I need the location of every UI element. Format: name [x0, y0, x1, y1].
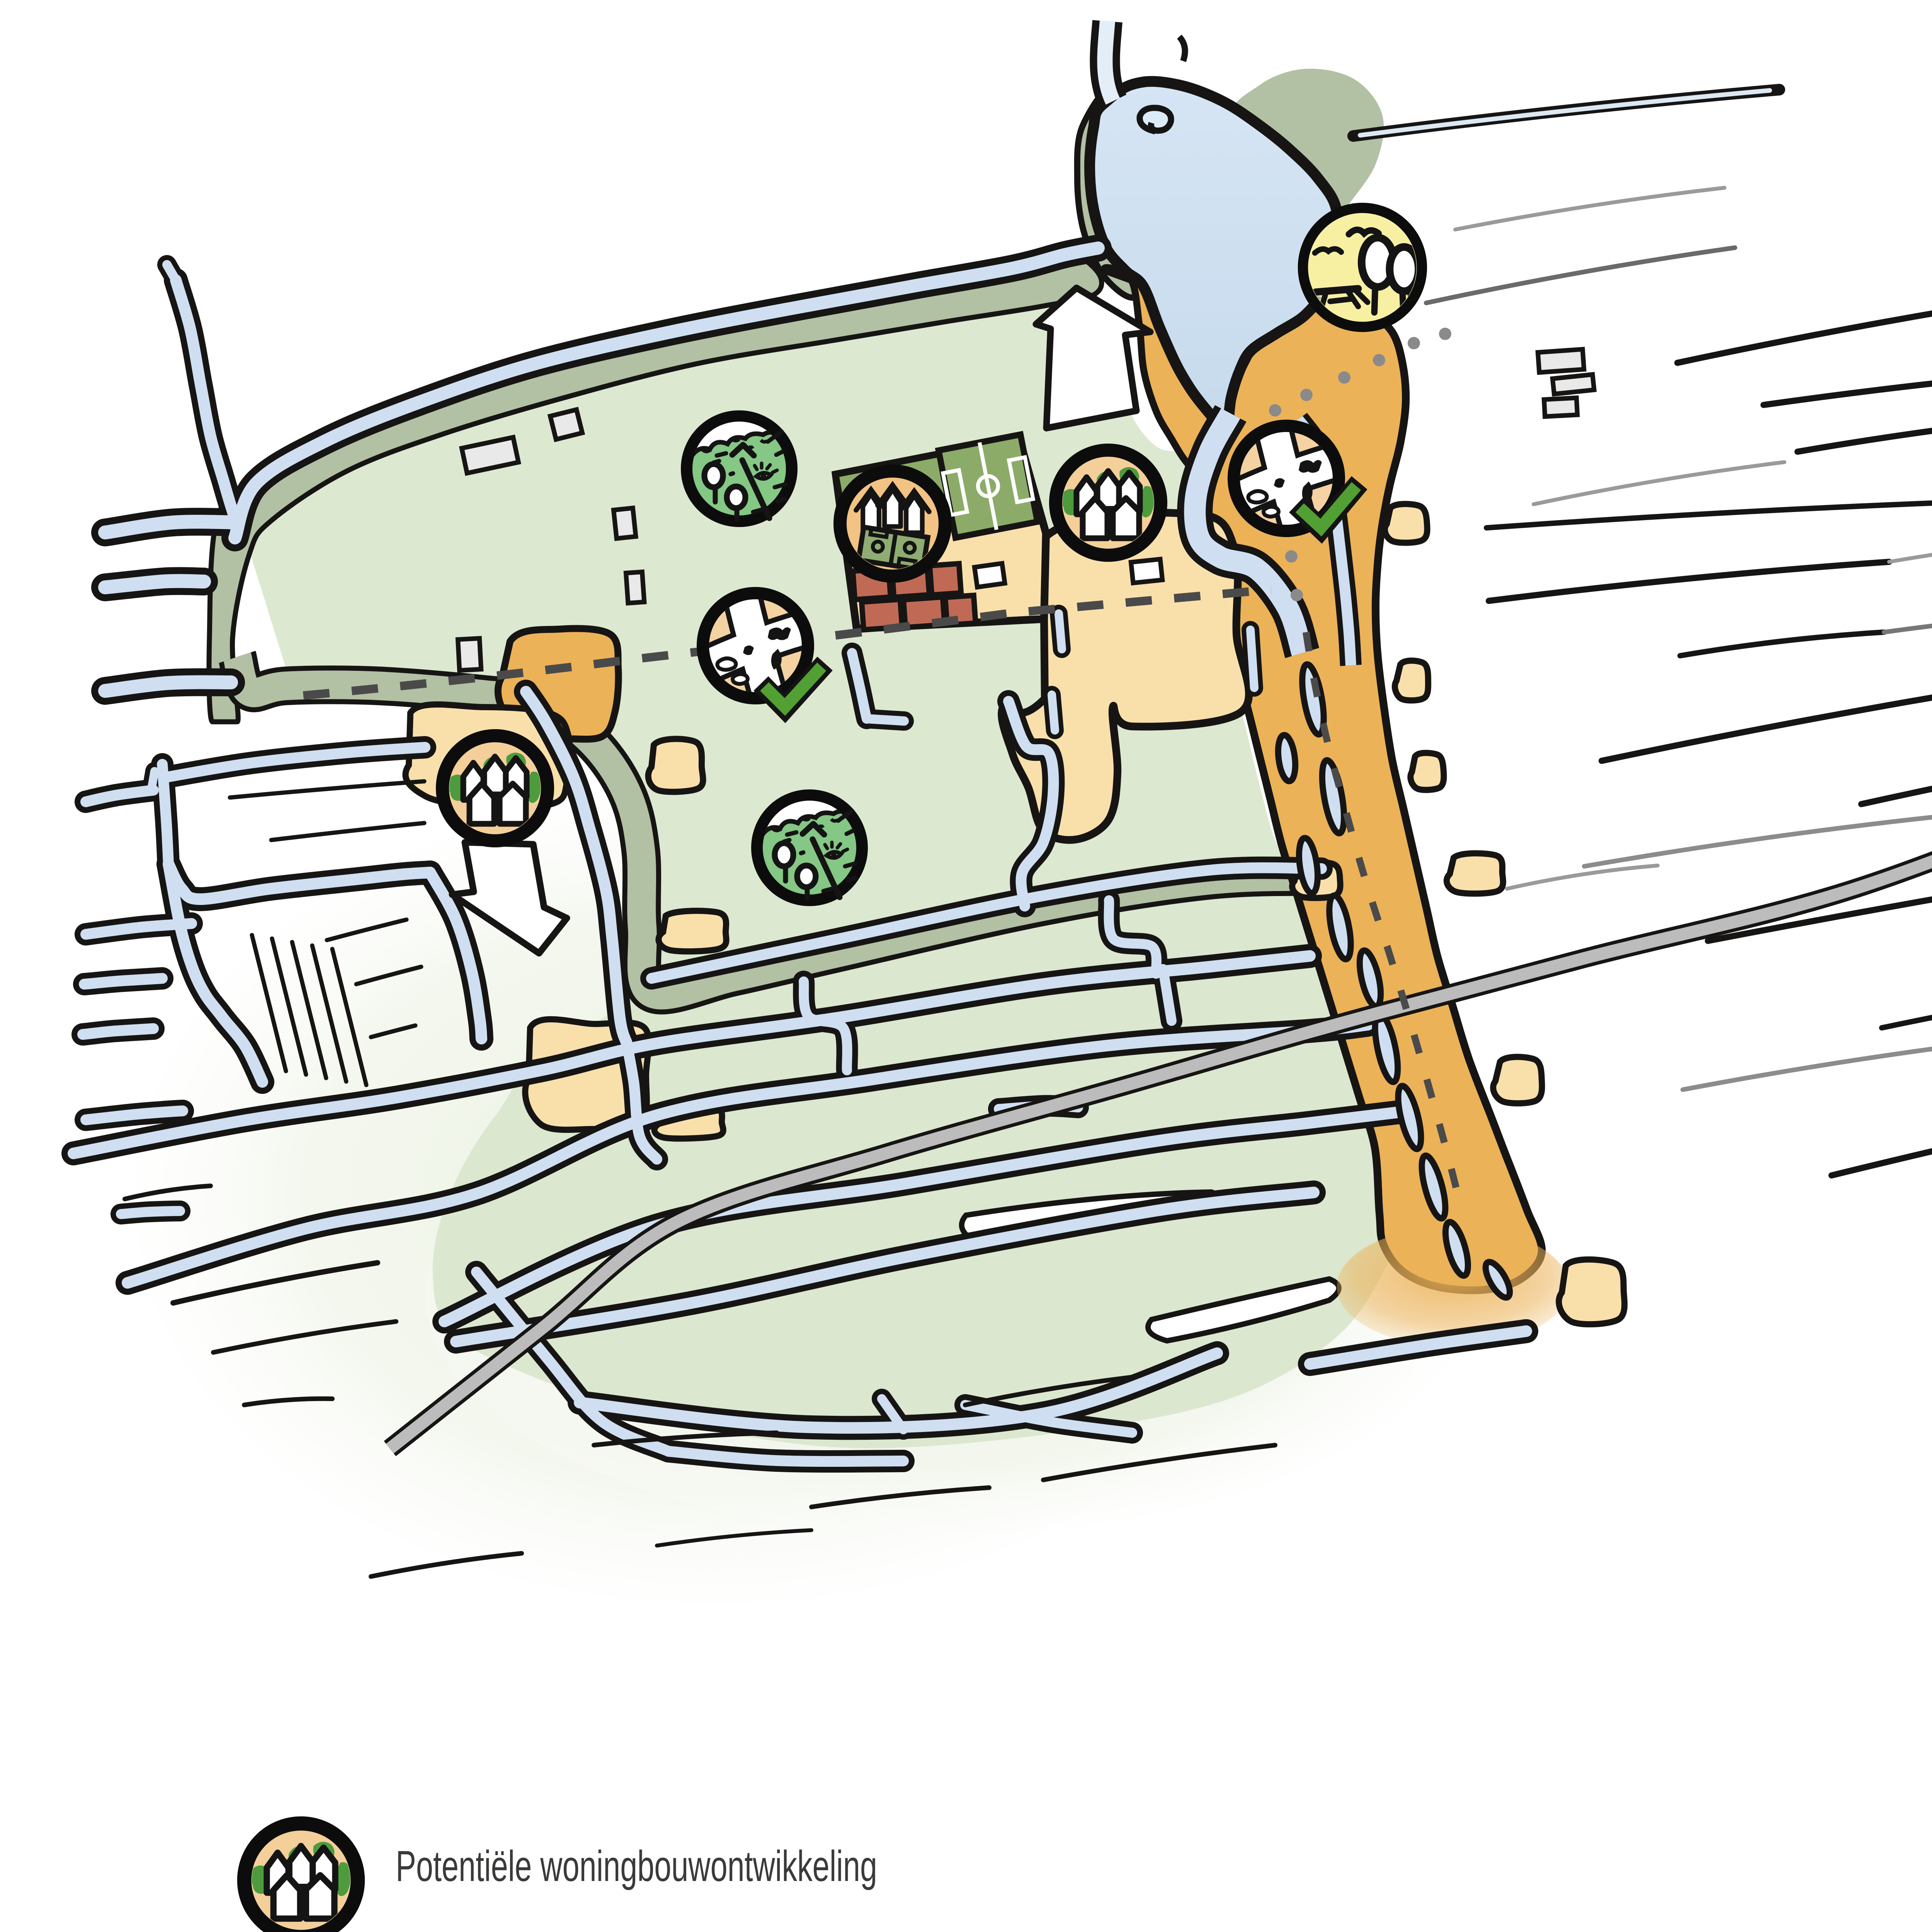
svg-text:Potentiële woningbouwontwikkel: Potentiële woningbouwontwikkeling — [396, 1842, 877, 1890]
